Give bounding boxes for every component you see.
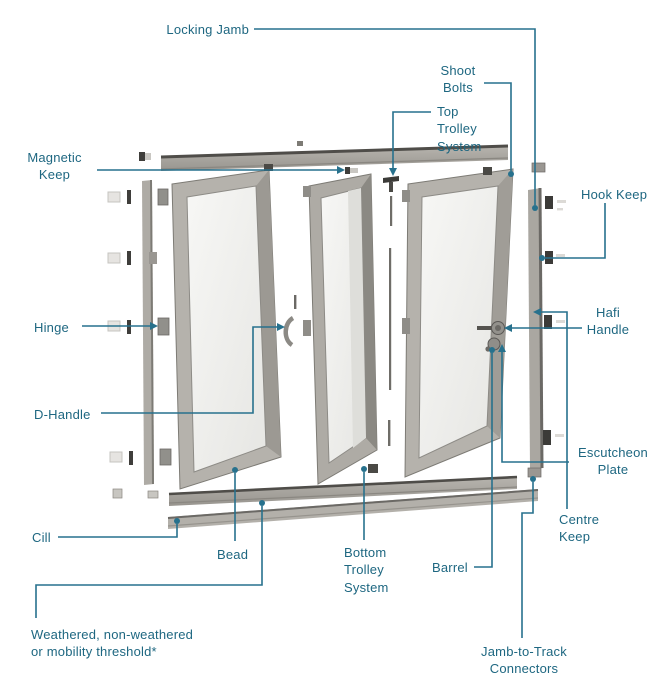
jamb-to-track-connector-part [528,468,541,477]
bottom-rails [168,476,538,529]
hinge-knuckle [303,186,311,197]
diagram-canvas [0,0,665,700]
hinge-pin [127,320,131,334]
label-top-trolley-system: Top Trolley System [437,103,507,155]
left-jamb-part [108,152,171,498]
label-locking-jamb: Locking Jamb [149,21,249,38]
d-handle-part [286,318,293,345]
door-panel-right [402,167,513,477]
door-left-glass [187,186,266,472]
handle-spindle-pin [294,295,296,309]
jamb-foot [148,491,158,498]
hook-keep-part [545,196,553,209]
jamb-to-track-connector-top [532,163,545,172]
endpoint-dot-threshold [259,500,265,506]
label-hinge: Hinge [34,319,84,336]
hinge-pin [127,190,131,204]
label-d-handle: D-Handle [34,406,104,423]
top-trolley-part [383,176,399,183]
label-cill: Cill [32,529,72,546]
hinge-hardware-row-1 [108,189,168,205]
hafi-handle-knob [495,325,501,331]
hinge-shim [108,192,120,202]
label-hook-keep: Hook Keep [581,186,661,203]
hinge-bracket [149,252,157,264]
leader-centre-keep [541,312,567,509]
keep-packer [555,434,564,437]
shoot-bolt-rod [389,248,391,390]
magnetic-keep-cap [145,153,151,160]
leader-cill [58,524,177,537]
hinge-hardware-row-2 [108,251,157,265]
door-parts-diagram: Locking Jamb Shoot Bolts Top Trolley Sys… [0,0,665,700]
hinge-bracket [160,449,171,465]
label-magnetic-keep: Magnetic Keep [12,149,97,184]
hinge-knuckle [303,320,311,336]
keep-packer [557,200,566,203]
magnetic-keep-block [345,167,350,174]
hinge-pin [127,251,131,265]
hinge-bracket [158,318,169,335]
endpoint-dot-cill [174,518,180,524]
label-threshold: Weathered, non-weathered or mobility thr… [31,626,241,661]
label-shoot-bolts: Shoot Bolts [428,62,488,97]
endpoint-dot-bead [232,467,238,473]
hinge-knuckle [402,190,410,202]
endpoint-arrow-top-trolley [389,168,397,176]
keep-packer [556,254,565,257]
magnetic-keep-part-top [139,152,145,161]
endpoint-arrow-magnetic-keep [337,166,345,174]
endpoint-dot-bottom-trolley [361,466,367,472]
hook-keep-part [543,430,551,445]
magnetic-keep-piece [345,167,358,174]
shoot-bolt-rod [388,420,390,446]
endpoint-dot-barrel [489,347,495,353]
top-trolley-stem [389,182,393,192]
hinge-shim [108,253,120,263]
endpoint-dot-shoot-bolts [508,171,514,177]
door-right-glass [419,186,498,458]
endpoint-arrow-hinge [150,322,158,330]
leader-hook-keep [545,203,605,258]
label-bead: Bead [217,546,261,563]
hinge-bracket [158,189,168,205]
hinge-hardware-row-4 [110,449,171,465]
label-centre-keep: Centre Keep [559,511,619,546]
shoot-bolt-top-right-door [483,167,492,175]
door-panel-middle [303,174,377,484]
endpoint-dot-jamb-to-track [530,476,536,482]
keep-packer [556,320,565,323]
label-escutcheon-plate: Escutcheon Plate [568,444,658,479]
keep-packer [557,208,563,210]
bottom-trolley-part [368,464,378,473]
endpoint-dot-locking-jamb [532,205,538,211]
label-hafi-handle: Hafi Handle [577,304,639,339]
shoot-bolt-rod [390,196,392,226]
jamb-foot [113,489,122,498]
label-bottom-trolley-system: Bottom Trolley System [344,544,410,596]
track-screw-icon [297,141,303,146]
leader-jamb-to-track [522,482,533,638]
magnetic-keep-plate [350,168,358,173]
centre-keep-part [544,315,552,329]
hinge-pin [129,451,133,465]
hinge-knuckle [402,318,410,334]
endpoint-dot-hook-keep [539,255,545,261]
label-jamb-to-track-connectors: Jamb-to-Track Connectors [474,643,574,678]
label-barrel: Barrel [432,559,478,576]
hinge-shim [110,452,122,462]
